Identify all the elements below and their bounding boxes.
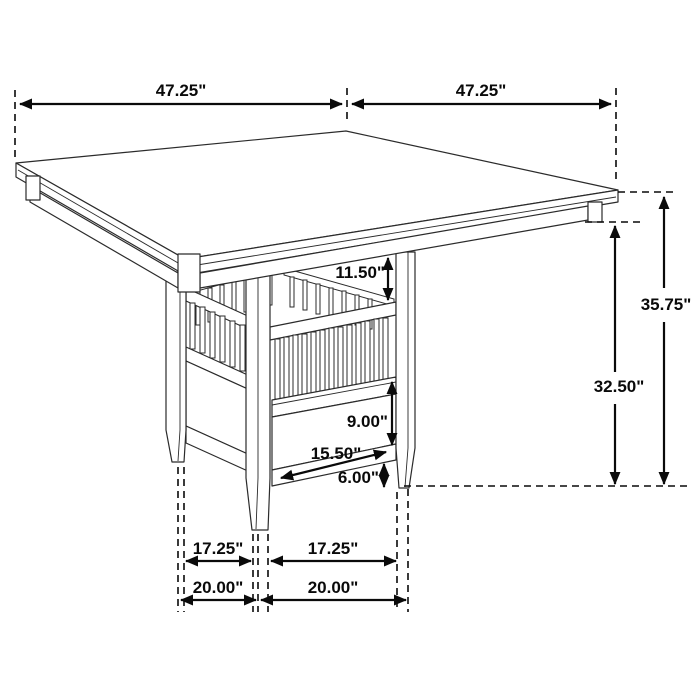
dim-foot-height: 6.00" [338,464,384,487]
dim-label-leg-span-outer-left: 20.00" [193,578,244,597]
dim-label-tabletop-depth: 47.25" [456,81,507,100]
dim-label-leg-span-outer-right: 20.00" [308,578,359,597]
dim-tabletop-width: 47.25" [20,81,342,104]
dimension-diagram: 47.25" 47.25" 35.75" 32.50" 11.50" 9.00" [0,0,700,700]
dim-leg-span-outer-left: 20.00" [181,578,256,600]
table-drawing-svg: 47.25" 47.25" 35.75" 32.50" 11.50" 9.00" [0,0,700,700]
dim-label-shelf-gap: 11.50" [335,263,385,282]
dim-overall-height: 35.75" [641,197,692,484]
dim-label-foot-height: 6.00" [338,468,379,487]
dim-label-leg-span-inner-left: 17.25" [193,539,244,558]
right-leg [396,252,415,488]
dim-label-leg-span-inner-right: 17.25" [308,539,359,558]
dim-apron-height: 32.50" [594,226,645,484]
dim-label-tabletop-width: 47.25" [156,81,207,100]
left-leg [166,272,186,462]
dim-leg-span-outer-right: 20.00" [261,578,406,600]
tabletop [16,131,618,292]
dim-label-overall-height: 35.75" [641,295,692,314]
dim-label-apron-height: 32.50" [594,377,645,396]
dim-leg-span-inner-right: 17.25" [271,539,396,561]
dim-tabletop-depth: 47.25" [352,81,611,104]
dim-label-box-height: 9.00" [347,412,388,431]
dim-leg-span-inner-left: 17.25" [186,539,251,561]
front-leg [246,266,270,530]
dim-label-box-width: 15.50" [311,444,362,463]
